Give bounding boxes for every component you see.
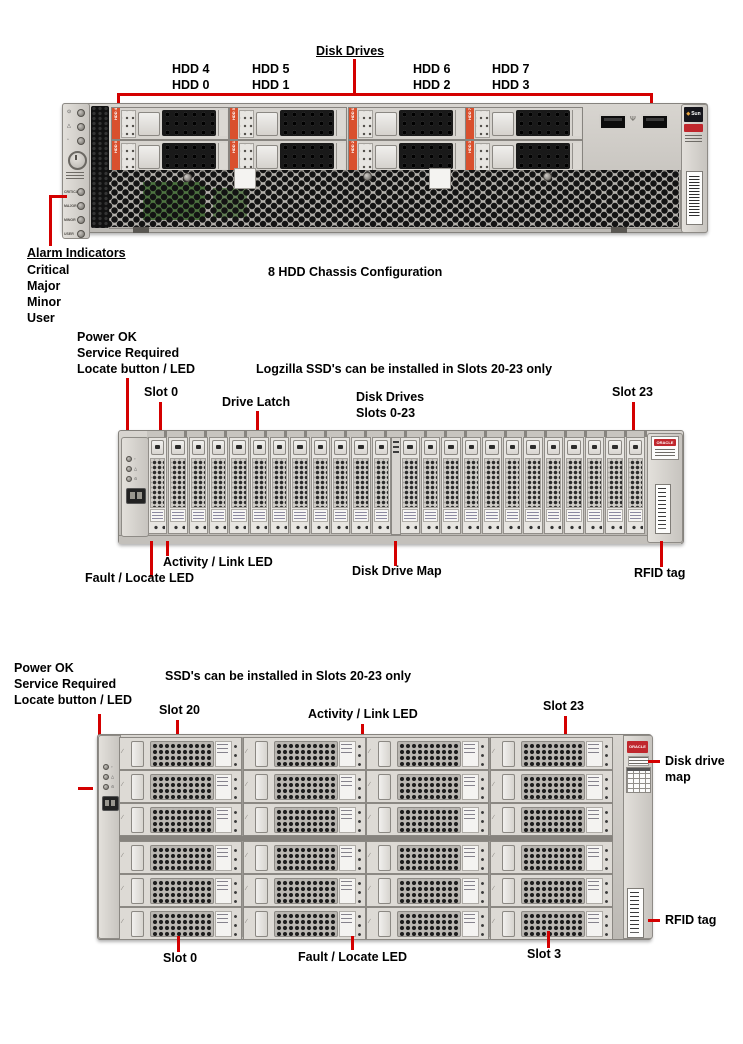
bot-rfid-label: RFID tag bbox=[665, 913, 716, 927]
drive-handle bbox=[255, 774, 268, 800]
disk-shelf-2u: ▫ △ ⊙ ORACLE bbox=[118, 430, 684, 544]
drive-grille bbox=[587, 458, 603, 508]
drive-face bbox=[162, 110, 216, 136]
service-led bbox=[103, 774, 109, 780]
disk-drive-map bbox=[626, 767, 651, 793]
drive-handle bbox=[131, 774, 144, 800]
drive-latch-button bbox=[256, 145, 278, 169]
oracle-logo: ORACLE bbox=[654, 439, 676, 446]
locate-led bbox=[103, 784, 109, 790]
chassis-foot bbox=[611, 227, 627, 233]
leader-bot-map bbox=[648, 760, 660, 763]
service-led bbox=[126, 466, 132, 472]
latch-release-icon: ∕ bbox=[122, 782, 123, 788]
rfid-tag bbox=[627, 888, 644, 938]
drive-leds bbox=[486, 525, 499, 530]
drive-label bbox=[339, 911, 356, 937]
drive-leds bbox=[480, 879, 485, 903]
drive-leds bbox=[294, 525, 307, 530]
drive-module-r0c1: ∕ bbox=[243, 737, 366, 770]
drive-mini-label bbox=[455, 110, 464, 136]
drive-label bbox=[525, 509, 541, 522]
leader-bot-locate bbox=[78, 787, 93, 790]
drive-label bbox=[586, 878, 603, 904]
drive-leds bbox=[480, 912, 485, 936]
latch-release-icon: ∕ bbox=[493, 749, 494, 755]
drive-slot-1 bbox=[168, 437, 187, 534]
minor-led bbox=[77, 216, 85, 224]
drive-grille bbox=[292, 458, 307, 508]
power-ok-icon: ▫ bbox=[111, 764, 112, 769]
drive-latch-button bbox=[138, 112, 160, 136]
drive-label bbox=[215, 807, 232, 833]
drive-face bbox=[280, 110, 334, 136]
drive-mini-label bbox=[218, 143, 227, 169]
mid-rfid-label: RFID tag bbox=[634, 566, 685, 580]
bot-note: SSD's can be installed in Slots 20-23 on… bbox=[165, 669, 411, 683]
drive-latch-button bbox=[492, 112, 514, 136]
bot-map-label-line1: Disk drive bbox=[665, 754, 725, 768]
drive-face bbox=[280, 143, 334, 169]
hdd-slot-tag: HDD 0 bbox=[112, 141, 120, 172]
drive-slot-13 bbox=[421, 437, 441, 534]
leader-bot-rfid bbox=[648, 919, 660, 922]
drive-handle bbox=[131, 741, 144, 767]
drive-grille bbox=[443, 458, 459, 508]
drive-leds bbox=[274, 525, 287, 530]
drive-label bbox=[339, 774, 356, 800]
power-ok-led bbox=[126, 456, 132, 462]
drive-handle bbox=[502, 878, 515, 904]
drive-handle bbox=[131, 845, 144, 871]
drive-slot-21 bbox=[585, 437, 605, 534]
alarm-item-critical: Critical bbox=[27, 263, 69, 277]
drive-mini-label bbox=[572, 143, 581, 169]
badge-text-lines bbox=[685, 135, 702, 144]
fault-icon: △ bbox=[134, 466, 137, 471]
power-ok-led bbox=[103, 764, 109, 770]
mid-slot23-label: Slot 23 bbox=[612, 385, 653, 399]
drive-grille bbox=[150, 845, 214, 871]
drive-module-r1c2: ∕ bbox=[366, 770, 489, 803]
drive-leds bbox=[357, 879, 362, 903]
front-control-ear: ⊙ △ ▫ CRITICAL MAJOR MINOR USER bbox=[62, 103, 90, 239]
drive-latch bbox=[253, 440, 266, 455]
left-vent-strip bbox=[91, 106, 109, 228]
rfid-tag bbox=[655, 484, 671, 534]
mid-slot0-label: Slot 0 bbox=[144, 385, 178, 399]
power-ok-icon: ▫ bbox=[67, 138, 69, 143]
drive-handle bbox=[502, 845, 515, 871]
bot-slot23-label: Slot 23 bbox=[543, 699, 584, 713]
drive-led-block bbox=[358, 143, 373, 171]
drive-face bbox=[516, 110, 570, 136]
shelf4u-right-ear: ORACLE bbox=[623, 735, 653, 939]
drive-handle bbox=[502, 741, 515, 767]
drive-label bbox=[339, 741, 356, 767]
user-led bbox=[77, 230, 85, 238]
drive-grille bbox=[374, 458, 389, 508]
disk-shelf-4u: ▫ △ ⊙ ∕∕∕∕∕∕∕∕∕∕∕∕∕∕∕∕∕∕∕∕∕∕∕∕ ORACLE bbox=[97, 734, 652, 940]
drive-latch bbox=[293, 440, 306, 455]
bot-power-ok-label: Power OK bbox=[14, 661, 74, 675]
drive-handle bbox=[131, 878, 144, 904]
drive-module-r5c2: ∕ bbox=[366, 907, 489, 940]
drive-module-r4c1: ∕ bbox=[243, 874, 366, 907]
drive-leds bbox=[233, 879, 238, 903]
hdd-slot-tag: HDD 4 bbox=[112, 108, 120, 139]
alarm-led-label: MAJOR bbox=[64, 204, 77, 208]
drive-leds bbox=[445, 525, 458, 530]
drive-grille bbox=[274, 911, 338, 937]
drive-handle bbox=[255, 741, 268, 767]
drive-grille bbox=[521, 878, 585, 904]
drive-leds bbox=[568, 525, 581, 530]
shelf-left-ear: ▫ △ ⊙ bbox=[121, 437, 149, 537]
drive-leds bbox=[480, 742, 485, 766]
drive-module-r3c2: ∕ bbox=[366, 841, 489, 874]
hardware-diagram: Disk Drives HDD 4 HDD 5 HDD 6 HDD 7 HDD … bbox=[0, 0, 743, 1044]
drive-module-r0c2: ∕ bbox=[366, 737, 489, 770]
drive-slots-0-11 bbox=[148, 437, 391, 534]
drive-handle bbox=[502, 807, 515, 833]
drive-leds bbox=[527, 525, 540, 530]
drive-module-r4c3: ∕ bbox=[490, 874, 613, 907]
latch-release-icon: ∕ bbox=[493, 782, 494, 788]
drive-leds bbox=[233, 912, 238, 936]
drive-module-r5c1: ∕ bbox=[243, 907, 366, 940]
drive-handle bbox=[255, 807, 268, 833]
hdd6-label: HDD 6 bbox=[413, 62, 451, 76]
drive-label bbox=[462, 741, 479, 767]
drive-slot-9 bbox=[331, 437, 350, 534]
drive-grille bbox=[402, 458, 418, 508]
drive-leds bbox=[604, 879, 609, 903]
drive-leds bbox=[193, 525, 206, 530]
drive-label bbox=[462, 911, 479, 937]
drive-grille bbox=[525, 458, 541, 508]
drive-latch-button bbox=[492, 145, 514, 169]
usb-port bbox=[641, 114, 669, 130]
drive-latch bbox=[506, 440, 520, 455]
drive-slot-8 bbox=[311, 437, 330, 534]
usb-port bbox=[599, 114, 627, 130]
mid-note: Logzilla SSD's can be installed in Slots… bbox=[256, 362, 552, 376]
drive-handle bbox=[378, 878, 391, 904]
drive-leds bbox=[376, 525, 389, 530]
drive-latch bbox=[588, 440, 602, 455]
drive-grille bbox=[397, 878, 461, 904]
critical-led bbox=[77, 188, 85, 196]
drive-label bbox=[462, 845, 479, 871]
drive-slot-14 bbox=[441, 437, 461, 534]
drive-latch bbox=[444, 440, 458, 455]
drive-module-r3c3: ∕ bbox=[490, 841, 613, 874]
leader-disk-drives-bracket bbox=[117, 93, 653, 96]
leader-alarm-v bbox=[49, 195, 52, 246]
screw-icon bbox=[183, 173, 192, 182]
drive-leds bbox=[233, 525, 246, 530]
drive-grille bbox=[150, 911, 214, 937]
drive-latch-button bbox=[375, 112, 397, 136]
drive-handle bbox=[255, 878, 268, 904]
drive-latch bbox=[375, 440, 388, 455]
vent-hex-pattern bbox=[109, 170, 679, 227]
drive-latch bbox=[212, 440, 225, 455]
drive-label bbox=[587, 509, 603, 522]
latch-release-icon: ∕ bbox=[246, 749, 247, 755]
drive-module-r3c0: ∕ bbox=[119, 841, 242, 874]
mid-power-ok-label: Power OK bbox=[77, 330, 137, 344]
oracle-badge: ORACLE bbox=[627, 741, 648, 753]
drive-leds bbox=[233, 846, 238, 870]
hdd-slot-tag: HDD 7 bbox=[466, 108, 474, 139]
drive-handle bbox=[131, 911, 144, 937]
mid-service-required-label: Service Required bbox=[77, 346, 179, 360]
drive-leds bbox=[213, 525, 226, 530]
drive-label bbox=[150, 509, 165, 522]
chassis-foot bbox=[133, 227, 149, 233]
leader-mid-activity bbox=[166, 541, 169, 556]
drive-mini-label bbox=[572, 110, 581, 136]
drive-grille bbox=[274, 741, 338, 767]
drive-slot-7 bbox=[290, 437, 309, 534]
drive-grille bbox=[397, 807, 461, 833]
drive-handle bbox=[378, 774, 391, 800]
drive-mini-label bbox=[455, 143, 464, 169]
drive-label bbox=[586, 807, 603, 833]
drive-latch bbox=[567, 440, 581, 455]
drive-label bbox=[339, 878, 356, 904]
bot-map-label-line2: map bbox=[665, 770, 691, 784]
drive-slot-16 bbox=[482, 437, 502, 534]
panel-cutout bbox=[429, 168, 451, 189]
slot3-label: Slot 3 bbox=[527, 947, 561, 961]
drive-latch bbox=[334, 440, 347, 455]
major-led bbox=[77, 202, 85, 210]
drive-handle bbox=[502, 911, 515, 937]
latch-release-icon: ∕ bbox=[493, 886, 494, 892]
alarm-indicators-heading: Alarm Indicators bbox=[27, 246, 126, 260]
locate-icon: ⊙ bbox=[67, 110, 71, 115]
latch-release-icon: ∕ bbox=[246, 782, 247, 788]
drive-led-block bbox=[121, 143, 136, 171]
drive-mini-label bbox=[218, 110, 227, 136]
slot0-label: Slot 0 bbox=[163, 951, 197, 965]
badge-text-lines bbox=[655, 449, 675, 457]
drive-grille bbox=[150, 807, 214, 833]
right-rack-ear: Sun bbox=[681, 104, 708, 233]
drive-grille bbox=[521, 774, 585, 800]
drive-latch bbox=[403, 440, 417, 455]
drive-grille bbox=[274, 878, 338, 904]
drive-leds bbox=[254, 525, 267, 530]
drive-slot-20 bbox=[564, 437, 584, 534]
drive-leds bbox=[357, 912, 362, 936]
oracle-badge: ORACLE bbox=[651, 436, 679, 460]
latch-release-icon: ∕ bbox=[369, 782, 370, 788]
drive-latch-button bbox=[138, 145, 160, 169]
top-drive-bays: HDD 4HDD 5HDD 6HDD 7HDD 0HDD 1HDD 2HDD 3 bbox=[109, 107, 645, 170]
drive-grille bbox=[274, 845, 338, 871]
drive-bay-hdd5: HDD 5 bbox=[229, 107, 347, 140]
drive-slots-12-23 bbox=[400, 437, 645, 534]
drive-label bbox=[462, 878, 479, 904]
drive-module-r0c0: ∕ bbox=[119, 737, 242, 770]
drive-leds bbox=[315, 525, 328, 530]
disk-drives-line2: Slots 0-23 bbox=[356, 406, 415, 420]
drive-mini-label bbox=[336, 110, 345, 136]
drive-module-r3c1: ∕ bbox=[243, 841, 366, 874]
badge-text-lines bbox=[628, 756, 649, 766]
drive-label bbox=[339, 845, 356, 871]
drive-leds bbox=[480, 846, 485, 870]
drive-label bbox=[215, 774, 232, 800]
drive-grille bbox=[397, 741, 461, 767]
drive-grille bbox=[313, 458, 328, 508]
drive-slot-15 bbox=[462, 437, 482, 534]
drive-handle bbox=[131, 807, 144, 833]
drive-label bbox=[462, 774, 479, 800]
drive-handle bbox=[255, 911, 268, 937]
alarm-led-label: USER bbox=[64, 232, 74, 236]
drive-leds bbox=[589, 525, 602, 530]
drive-module-r4c0: ∕ bbox=[119, 874, 242, 907]
drive-slot-2 bbox=[189, 437, 208, 534]
drive-latch bbox=[526, 440, 540, 455]
drive-grille bbox=[397, 911, 461, 937]
latch-release-icon: ∕ bbox=[369, 853, 370, 859]
hdd-slot-tag: HDD 3 bbox=[466, 141, 474, 172]
drive-leds bbox=[233, 742, 238, 766]
bottom-rail bbox=[119, 535, 681, 544]
drive-latch bbox=[354, 440, 367, 455]
drive-latch bbox=[232, 440, 245, 455]
drive-leds bbox=[507, 525, 520, 530]
alarm-item-user: User bbox=[27, 311, 55, 325]
drive-latch bbox=[629, 440, 643, 455]
drive-bay-hdd6: HDD 6 bbox=[348, 107, 466, 140]
drive-leds bbox=[609, 525, 622, 530]
drive-label bbox=[339, 807, 356, 833]
drive-grille bbox=[521, 911, 585, 937]
drive-slot-6 bbox=[270, 437, 289, 534]
drive-bay-hdd3: HDD 3 bbox=[465, 140, 583, 173]
drive-label bbox=[546, 509, 562, 522]
latch-release-icon: ∕ bbox=[369, 749, 370, 755]
drive-latch bbox=[485, 440, 499, 455]
drive-label bbox=[292, 509, 307, 522]
power-button-icon bbox=[68, 151, 87, 170]
latch-release-icon: ∕ bbox=[246, 919, 247, 925]
drive-label bbox=[505, 509, 521, 522]
bot-drive-grid: ∕∕∕∕∕∕∕∕∕∕∕∕∕∕∕∕∕∕∕∕∕∕∕∕ bbox=[119, 737, 613, 937]
drive-latch bbox=[151, 440, 164, 455]
drive-label bbox=[484, 509, 500, 522]
alarm-led-user: USER bbox=[64, 229, 88, 240]
hdd3-label: HDD 3 bbox=[492, 78, 530, 92]
drive-handle bbox=[378, 807, 391, 833]
mid-activity-label: Activity / Link LED bbox=[163, 555, 273, 569]
latch-release-icon: ∕ bbox=[493, 853, 494, 859]
drive-leds bbox=[604, 775, 609, 799]
locate-led bbox=[77, 109, 85, 117]
drive-grille bbox=[333, 458, 348, 508]
bot-service-required-label: Service Required bbox=[14, 677, 116, 691]
shelf4u-left-ear: ▫ △ ⊙ bbox=[98, 735, 121, 939]
leader-slot0 bbox=[177, 936, 180, 952]
sun-badge: Sun bbox=[684, 107, 703, 122]
drive-label bbox=[443, 509, 459, 522]
drive-grille bbox=[607, 458, 623, 508]
drive-leds bbox=[480, 808, 485, 832]
drive-face bbox=[516, 143, 570, 169]
drive-label bbox=[215, 845, 232, 871]
leader-mid-rfid bbox=[660, 541, 663, 567]
drive-grille bbox=[521, 807, 585, 833]
locate-button-display bbox=[102, 796, 119, 811]
drive-latch bbox=[171, 440, 184, 455]
drive-leds bbox=[335, 525, 348, 530]
drive-leds bbox=[172, 525, 185, 530]
drive-led-block bbox=[239, 110, 254, 138]
leader-bot-fault bbox=[351, 936, 354, 950]
hdd7-label: HDD 7 bbox=[492, 62, 530, 76]
drive-latch bbox=[608, 440, 622, 455]
drive-slot-17 bbox=[503, 437, 523, 534]
drive-grille bbox=[150, 878, 214, 904]
drive-leds bbox=[604, 808, 609, 832]
disk-drives-line1: Disk Drives bbox=[356, 390, 424, 404]
drive-latch-label: Drive Latch bbox=[222, 395, 290, 409]
drive-latch bbox=[273, 440, 286, 455]
fault-icon: △ bbox=[111, 774, 114, 779]
panel-cutout bbox=[234, 168, 256, 189]
power-ok-led bbox=[77, 137, 85, 145]
drive-grille bbox=[521, 845, 585, 871]
hdd5-label: HDD 5 bbox=[252, 62, 290, 76]
slot20-label: Slot 20 bbox=[159, 703, 200, 717]
drive-slot-10 bbox=[351, 437, 370, 534]
mid-locate-label: Locate button / LED bbox=[77, 362, 195, 376]
drive-grille bbox=[521, 741, 585, 767]
drive-latch-button bbox=[256, 112, 278, 136]
drive-slot-22 bbox=[605, 437, 625, 534]
bot-locate-label: Locate button / LED bbox=[14, 693, 132, 707]
drive-slot-5 bbox=[250, 437, 269, 534]
drive-bay-hdd4: HDD 4 bbox=[111, 107, 229, 140]
drive-handle bbox=[502, 774, 515, 800]
drive-label bbox=[402, 509, 418, 522]
drive-grille bbox=[274, 807, 338, 833]
service-barcode-label bbox=[686, 171, 703, 225]
drive-leds bbox=[425, 525, 438, 530]
chassis-caption: 8 HDD Chassis Configuration bbox=[268, 265, 442, 279]
drive-mini-label bbox=[336, 143, 345, 169]
drive-latch bbox=[465, 440, 479, 455]
latch-release-icon: ∕ bbox=[493, 815, 494, 821]
drive-module-r2c0: ∕ bbox=[119, 803, 242, 836]
drive-leds bbox=[357, 775, 362, 799]
drive-leds bbox=[604, 846, 609, 870]
drive-grille bbox=[397, 774, 461, 800]
drive-face bbox=[399, 110, 453, 136]
drive-led-block bbox=[475, 143, 490, 171]
hdd2-label: HDD 2 bbox=[413, 78, 451, 92]
alarm-item-minor: Minor bbox=[27, 295, 61, 309]
drive-handle bbox=[378, 741, 391, 767]
drive-leds bbox=[357, 808, 362, 832]
